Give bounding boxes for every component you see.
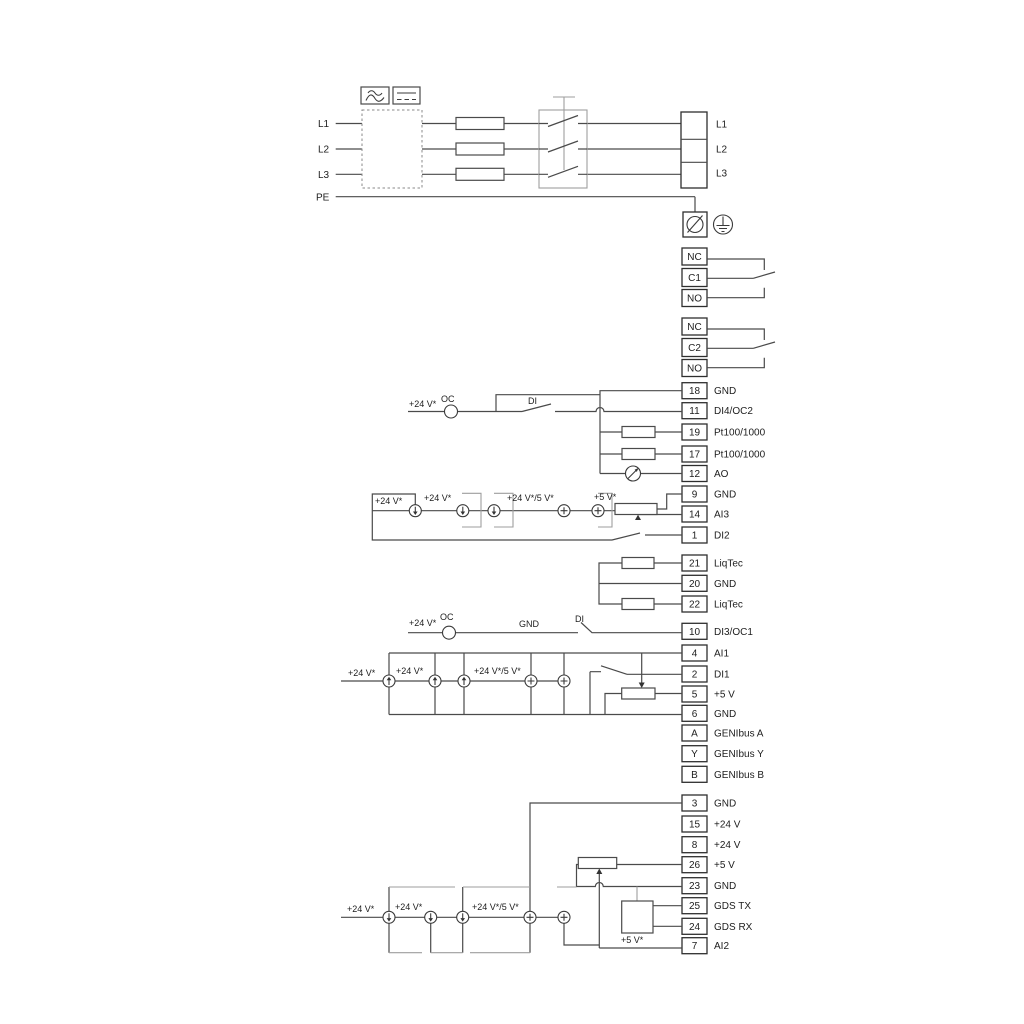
terminal-label: DI3/OC1 <box>714 627 753 638</box>
voltage-source-icon <box>558 505 570 517</box>
open-collector-icon <box>443 626 456 639</box>
terminal-label: LiqTec <box>714 559 743 570</box>
terminal-number: 23 <box>689 881 701 892</box>
terminal-number: C1 <box>688 273 701 284</box>
current-source-icon <box>457 505 469 517</box>
ao-meter-needle <box>628 471 636 479</box>
terminal-label: +5 V <box>714 860 735 871</box>
terminal-label: AI2 <box>714 941 729 952</box>
ac-symbol-box <box>361 87 389 104</box>
potentiometer-wiper-arrow <box>635 515 641 520</box>
voltage-source-icon <box>558 675 570 687</box>
terminal-label: +24 V <box>714 820 741 831</box>
io1-terminal-strip: 18GND11DI4/OC219Pt100/100017Pt100/100012… <box>682 383 766 543</box>
terminal-label: DI2 <box>714 531 730 542</box>
terminal-label: GENIbus B <box>714 770 764 781</box>
terminal-number: 14 <box>689 510 701 521</box>
fuse <box>456 118 504 130</box>
ground-bars-icon <box>717 217 730 232</box>
terminal-number: 2 <box>692 670 698 681</box>
terminal-label: GND <box>714 799 736 810</box>
annotation-5v: +5 V* <box>621 935 644 945</box>
relay1-section: NCC1NO <box>682 248 775 307</box>
relay2-contact <box>707 329 775 368</box>
power-output-label: L1 <box>716 119 728 130</box>
terminal-number: 24 <box>689 922 701 933</box>
current-source-icon <box>409 505 421 517</box>
current-source-icon <box>429 675 441 687</box>
filter-box <box>362 110 422 188</box>
annotation-di: DI <box>528 396 537 406</box>
terminal-number: 11 <box>689 406 700 417</box>
voltage-source-icon <box>524 911 536 923</box>
terminal-label: GDS TX <box>714 901 751 912</box>
io1-wires <box>372 391 682 540</box>
power-input-label: L2 <box>318 145 330 156</box>
voltage-source-icon <box>525 675 537 687</box>
terminal-label: Pt100/1000 <box>714 450 766 461</box>
terminal-number: 7 <box>692 941 698 952</box>
power-input-label: PE <box>316 193 330 204</box>
contactor-linkage <box>553 97 575 170</box>
resistor-pt100 <box>622 449 655 460</box>
current-source-icon <box>425 911 437 923</box>
annotation-24v: +24 V* <box>348 668 376 678</box>
terminal-number: Y <box>691 749 698 760</box>
io-group-3: 3GND15+24 V8+24 V26+5 V23GND25GDS TX24GD… <box>341 795 753 954</box>
open-collector-icon <box>445 405 458 418</box>
io2-terminal-strip: 10DI3/OC14AI12DI15+5 V6GNDAGENIbus AYGEN… <box>682 623 764 782</box>
annotation-24v: +24 V* <box>375 496 403 506</box>
terminal-label: GENIbus Y <box>714 749 764 760</box>
annotation-24v-5v: +24 V*/5 V* <box>507 493 554 503</box>
terminal-number: NO <box>687 294 702 305</box>
relay1-contact <box>707 259 775 298</box>
contactor-blades <box>539 116 587 178</box>
fuse <box>456 168 504 180</box>
current-source-icon <box>488 505 500 517</box>
terminal-number: 9 <box>692 490 698 501</box>
terminal-label: GND <box>714 709 736 720</box>
terminal-number: NO <box>687 364 702 375</box>
voltage-source-icon <box>592 505 604 517</box>
terminal-label: GND <box>714 881 736 892</box>
terminal-number: 19 <box>689 428 701 439</box>
power-section: L1 L2 L3 PE L1 L2 L3 <box>316 87 733 237</box>
terminal-number: 25 <box>689 901 701 912</box>
relay2-block: NCC2NO <box>682 318 707 377</box>
relay2-section: NCC2NO <box>682 318 775 377</box>
terminal-number: C2 <box>688 343 701 354</box>
annotation-24v-5v: +24 V*/5 V* <box>472 902 519 912</box>
power-output-label: L2 <box>716 145 728 156</box>
terminal-label: AI3 <box>714 510 729 521</box>
power-wires <box>336 124 695 213</box>
power-terminal-block <box>681 112 707 188</box>
terminal-number: 8 <box>692 840 698 851</box>
io3-terminal-strip: 3GND15+24 V8+24 V26+5 V23GND25GDS TX24GD… <box>682 795 753 954</box>
liqtec-group: 21LiqTec20GND22LiqTec <box>599 555 743 612</box>
terminal-label: GDS RX <box>714 922 753 933</box>
terminal-number: 20 <box>689 579 701 590</box>
annotation-5v: +5 V* <box>594 492 617 502</box>
potentiometer-wiper-arrow <box>639 683 645 689</box>
terminal-number: 17 <box>689 450 701 461</box>
annotation-gnd: GND <box>519 619 540 629</box>
gds-sensor-box <box>622 901 653 933</box>
terminal-number: 1 <box>692 531 698 542</box>
dc-symbol-box <box>393 87 420 104</box>
terminal-number: 4 <box>692 649 698 660</box>
terminal-label: GND <box>714 490 736 501</box>
annotation-24v: +24 V* <box>396 666 424 676</box>
terminal-number: NC <box>687 322 701 333</box>
power-input-label: L3 <box>318 170 330 181</box>
terminal-label: AO <box>714 469 729 480</box>
current-source-icon <box>383 675 395 687</box>
liqtec-wires <box>599 563 682 604</box>
terminal-label: GND <box>714 579 736 590</box>
annotation-oc: OC <box>441 394 455 404</box>
terminal-number: 5 <box>692 690 698 701</box>
annotation-24v: +24 V* <box>409 618 437 628</box>
potentiometer <box>578 858 616 869</box>
current-source-icon <box>457 911 469 923</box>
power-output-label: L3 <box>716 169 728 180</box>
terminal-number: 12 <box>689 469 701 480</box>
current-source-icon <box>458 675 470 687</box>
voltage-source-icon <box>558 911 570 923</box>
potentiometer-wiper-arrow <box>596 869 602 875</box>
terminal-label: +24 V <box>714 840 741 851</box>
terminal-label: Pt100/1000 <box>714 428 766 439</box>
resistor-pt100 <box>622 427 655 438</box>
resistor-liqtec <box>622 599 654 610</box>
terminal-number: A <box>691 729 698 740</box>
terminal-label: AI1 <box>714 649 729 660</box>
annotation-24v: +24 V* <box>395 902 423 912</box>
annotation-24v: +24 V* <box>409 399 437 409</box>
terminal-label: DI4/OC2 <box>714 406 753 417</box>
resistor-liqtec <box>622 558 654 569</box>
terminal-number: 18 <box>689 386 701 397</box>
terminal-label: LiqTec <box>714 600 743 611</box>
terminal-number: 22 <box>689 600 701 611</box>
terminal-label: GENIbus A <box>714 729 764 740</box>
annotation-24v: +24 V* <box>347 904 375 914</box>
power-input-label: L1 <box>318 119 330 130</box>
terminal-label: DI1 <box>714 670 730 681</box>
terminal-number: 21 <box>689 559 701 570</box>
terminal-number: 26 <box>689 860 701 871</box>
terminal-number: 3 <box>692 799 698 810</box>
liqtec-terminal-strip: 21LiqTec20GND22LiqTec <box>682 555 743 612</box>
terminal-number: B <box>691 770 698 781</box>
terminal-label: +5 V <box>714 690 735 701</box>
terminal-number: 15 <box>689 820 701 831</box>
annotation-24v: +24 V* <box>424 493 452 503</box>
relay1-block: NCC1NO <box>682 248 707 307</box>
fuse <box>456 143 504 155</box>
potentiometer <box>615 504 657 515</box>
wiring-diagram-page: L1 L2 L3 PE L1 L2 L3 NCC1NO <box>0 0 1024 1024</box>
annotation-di: DI <box>575 614 584 624</box>
current-source-icon <box>383 911 395 923</box>
terminal-number: 6 <box>692 709 698 720</box>
potentiometer <box>622 688 655 699</box>
terminal-number: NC <box>687 252 701 263</box>
annotation-oc: OC <box>440 612 454 622</box>
terminal-number: 10 <box>689 627 701 638</box>
terminal-label: GND <box>714 386 736 397</box>
io-group-2: 10DI3/OC14AI12DI15+5 V6GNDAGENIbus AYGEN… <box>341 612 764 782</box>
io-group-1: 18GND11DI4/OC219Pt100/100017Pt100/100012… <box>372 383 765 543</box>
wiring-diagram: L1 L2 L3 PE L1 L2 L3 NCC1NO <box>0 0 1024 1024</box>
annotation-24v-5v: +24 V*/5 V* <box>474 666 521 676</box>
